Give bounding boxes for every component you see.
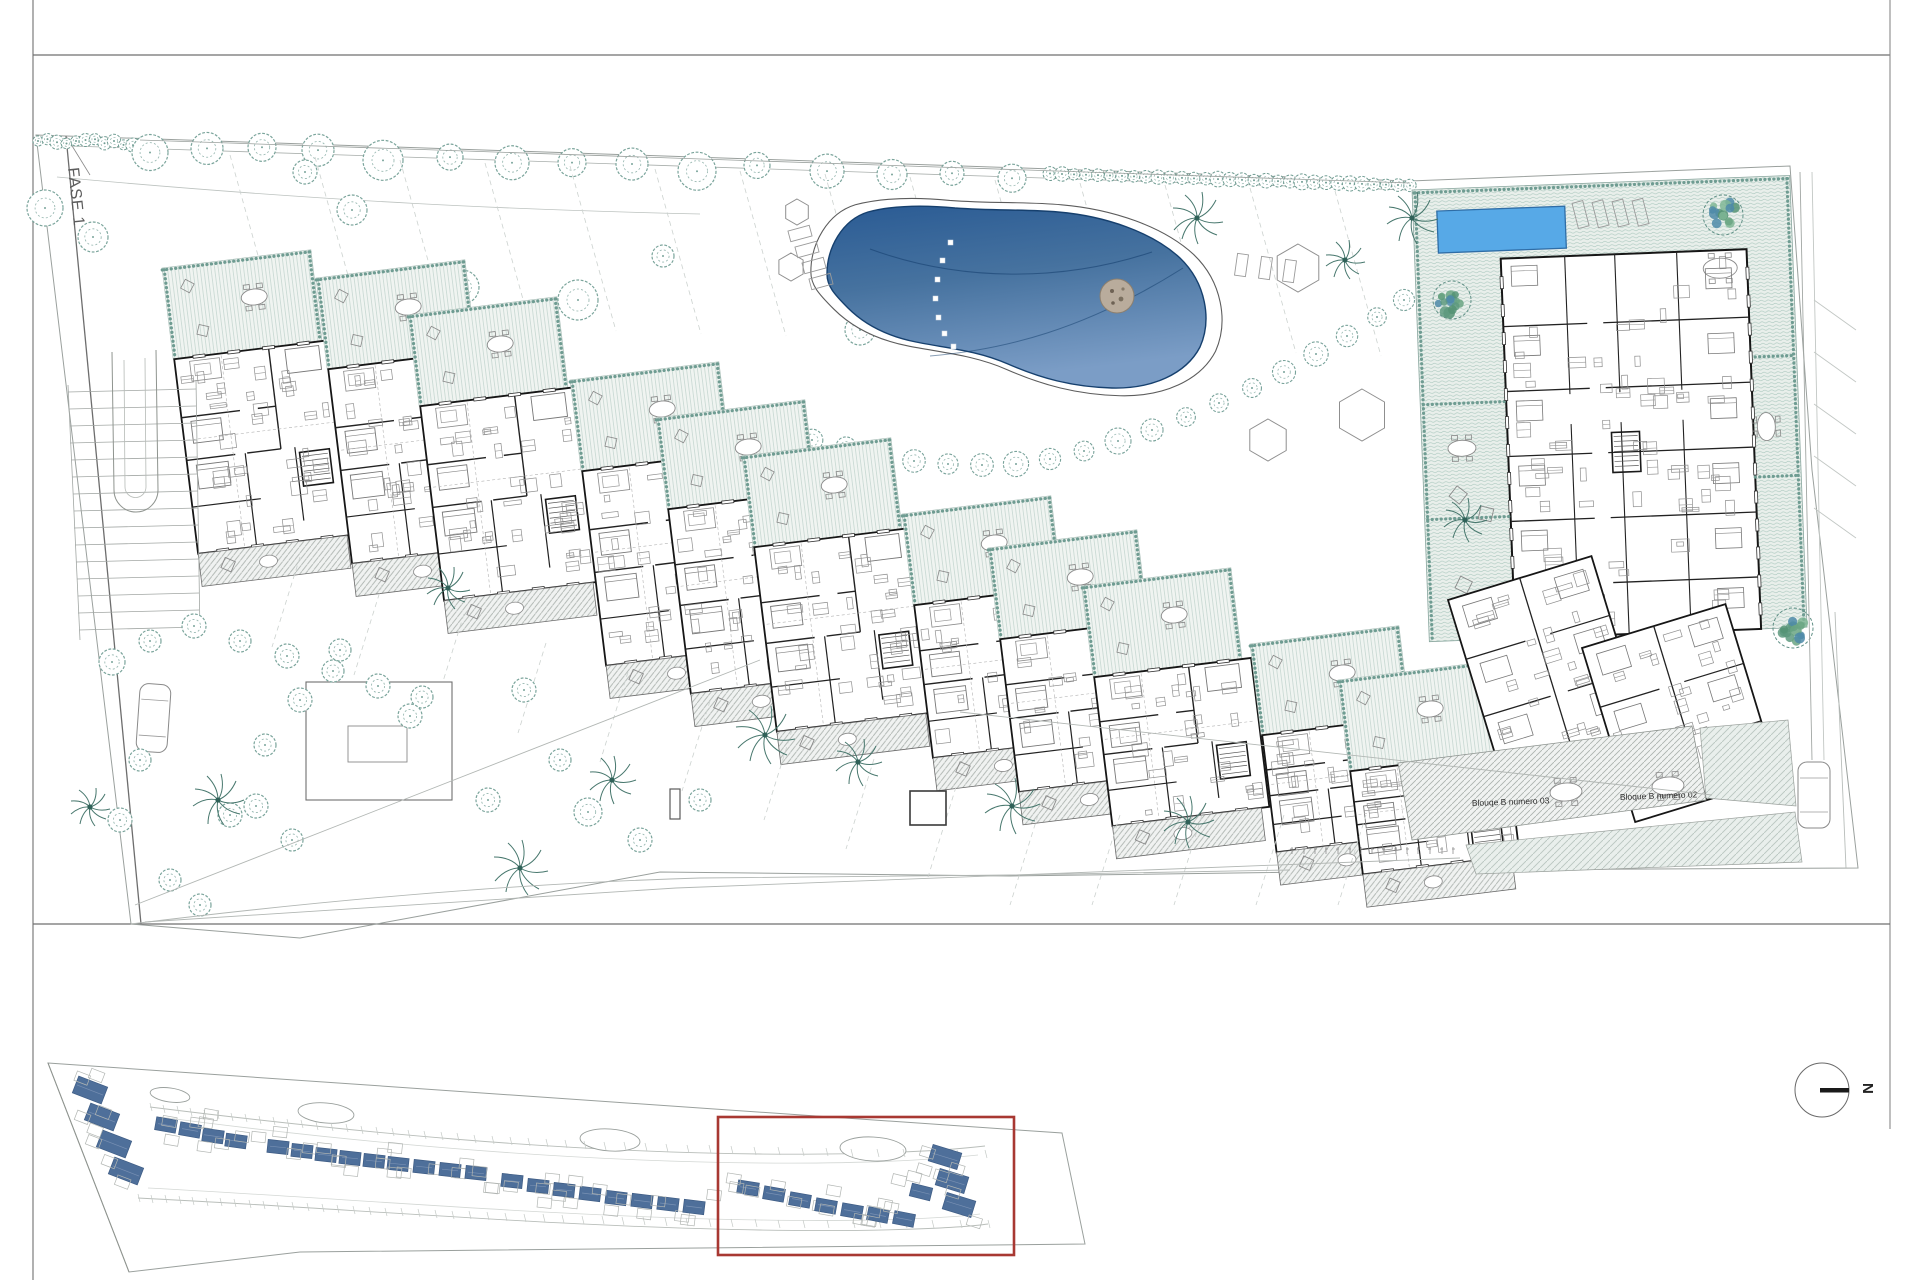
svg-text:N: N	[1859, 1083, 1876, 1094]
